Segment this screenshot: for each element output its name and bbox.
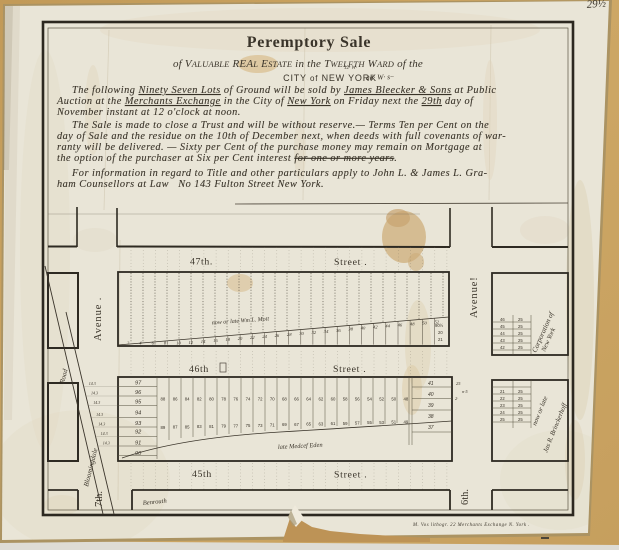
svg-text:65: 65 [306, 422, 311, 427]
svg-text:37: 37 [428, 425, 434, 431]
svg-text:46: 46 [500, 317, 505, 322]
svg-text:25: 25 [518, 324, 523, 329]
svg-text:66: 66 [294, 397, 299, 402]
svg-text:44: 44 [500, 331, 505, 336]
svg-text:For information in regard to T: For information in regard to Title and o… [71, 168, 488, 179]
svg-text:64: 64 [306, 397, 311, 402]
svg-text:88: 88 [161, 397, 166, 402]
svg-text:94: 94 [135, 411, 141, 417]
svg-text:44: 44 [385, 324, 390, 329]
svg-text:61: 61 [331, 421, 336, 426]
svg-text:43: 43 [500, 338, 505, 343]
svg-text:97: 97 [135, 381, 142, 387]
svg-text:2·: 2· [455, 396, 458, 401]
svg-text:24: 24 [500, 410, 505, 415]
svg-text:14.3: 14.3 [91, 391, 98, 396]
svg-text:92: 92 [135, 430, 142, 436]
svg-text:25: 25 [456, 381, 461, 386]
svg-text:M. Vos lithogr. 22 Merchants: M. Vos lithogr. 22 Merchants Exchange N.… [412, 523, 530, 528]
svg-text:96: 96 [135, 390, 142, 396]
svg-text:20: 20 [238, 336, 243, 341]
svg-text:25: 25 [500, 417, 505, 422]
svg-text:14.3: 14.3 [93, 400, 100, 405]
svg-text:28: 28 [287, 332, 292, 337]
svg-text:14: 14 [201, 339, 206, 344]
svg-text:41: 41 [428, 381, 434, 387]
svg-text:24: 24 [262, 334, 267, 339]
svg-text:25: 25 [518, 396, 523, 401]
svg-text:16: 16 [213, 338, 218, 343]
svg-text:23: 23 [500, 403, 505, 408]
svg-text:Avenue!: Avenue! [469, 276, 480, 318]
svg-text:14.3: 14.3 [101, 431, 108, 436]
svg-text:86: 86 [173, 397, 178, 402]
svg-text:90½: 90½ [435, 323, 444, 328]
svg-text:67: 67 [294, 422, 299, 427]
svg-text:10: 10 [176, 341, 181, 346]
svg-text:81: 81 [209, 424, 214, 429]
svg-text:25: 25 [518, 317, 523, 322]
svg-text:25: 25 [518, 331, 523, 336]
svg-text:79: 79 [221, 424, 226, 429]
svg-text:29½: 29½ [586, 0, 606, 11]
svg-text:14.3: 14.3 [89, 381, 96, 386]
svg-text:25: 25 [518, 338, 523, 343]
svg-text:57: 57 [355, 421, 360, 426]
svg-text:60: 60 [331, 397, 336, 402]
svg-text:36: 36 [336, 328, 341, 333]
svg-text:77: 77 [233, 423, 238, 428]
svg-text:of VALUABLE REAL ESTATE in the: of VALUABLE REAL ESTATE in the TWELFTH W… [173, 58, 423, 70]
svg-text:30: 30 [299, 331, 304, 336]
svg-text:12· W·: 12· W· [344, 66, 357, 71]
svg-text:68: 68 [282, 397, 287, 402]
svg-text:82: 82 [197, 397, 202, 402]
svg-text:Avenue .: Avenue . [93, 297, 104, 341]
svg-text:89: 89 [161, 425, 166, 430]
svg-text:22: 22 [250, 335, 255, 340]
svg-text:51: 51 [391, 420, 396, 425]
svg-text:80: 80 [209, 397, 214, 402]
svg-text:Peremptory Sale: Peremptory Sale [247, 34, 371, 51]
svg-text:55: 55 [367, 420, 372, 425]
svg-text:25: 25 [518, 389, 523, 394]
svg-text:32: 32 [312, 330, 317, 335]
svg-text:50: 50 [391, 397, 396, 402]
svg-text:ad· W· s··: ad· W· s·· [366, 72, 394, 82]
svg-text:November instant at 12 o'clock: November instant at 12 o'clock at noon. [56, 107, 241, 118]
svg-text:The following Ninety Seven Lot: The following Ninety Seven Lots of Groun… [72, 85, 497, 96]
svg-text:6th.: 6th. [460, 489, 471, 505]
svg-text:46: 46 [398, 323, 403, 328]
svg-text:n·5: n·5 [462, 389, 468, 394]
svg-text:74: 74 [246, 397, 251, 402]
svg-text:22: 22 [500, 396, 505, 401]
svg-text:69: 69 [282, 422, 287, 427]
svg-text:38: 38 [428, 414, 434, 420]
svg-text:The Sale is made to close a Tr: The Sale is made to close a Trust and wi… [72, 120, 489, 131]
svg-text:42: 42 [500, 345, 505, 350]
svg-text:7th.: 7th. [94, 491, 105, 507]
svg-text:14.3: 14.3 [103, 441, 110, 446]
svg-text:ranty will be delivered. — Six: ranty will be delivered. — Sixty per Cen… [57, 142, 483, 153]
svg-text:91: 91 [135, 441, 141, 447]
svg-text:25: 25 [518, 403, 523, 408]
svg-text:14.3: 14.3 [98, 422, 105, 427]
svg-text:38: 38 [348, 327, 353, 332]
svg-text:48: 48 [404, 397, 409, 402]
svg-text:34: 34 [324, 329, 329, 334]
svg-text:46th: 46th [189, 364, 209, 375]
svg-text:75: 75 [246, 423, 251, 428]
svg-text:Auction at the Merchants Excha: Auction at the Merchants Exchange in the… [56, 96, 475, 107]
svg-text:the option of the purchaser at: the option of the purchaser at Six per C… [57, 153, 397, 164]
svg-text:26: 26 [275, 333, 280, 338]
svg-text:85: 85 [185, 424, 190, 429]
svg-text:14.3: 14.3 [96, 412, 103, 417]
svg-text:40: 40 [428, 392, 434, 398]
svg-text:25: 25 [518, 417, 523, 422]
svg-text:95: 95 [135, 400, 142, 406]
svg-text:45: 45 [500, 324, 505, 329]
svg-text:84: 84 [185, 397, 190, 402]
svg-text:CITY of NEW YORK: CITY of NEW YORK [283, 73, 377, 83]
svg-text:72: 72 [258, 397, 263, 402]
svg-text:47th.: 47th. [190, 257, 213, 268]
svg-text:21: 21 [438, 337, 443, 342]
svg-text:42: 42 [373, 325, 378, 330]
svg-text:Street .: Street . [334, 257, 367, 268]
svg-text:20: 20 [438, 330, 443, 335]
svg-text:62: 62 [319, 397, 324, 402]
svg-text:21: 21 [500, 389, 505, 394]
svg-text:73: 73 [258, 423, 263, 428]
svg-text:59: 59 [343, 421, 348, 426]
svg-text:Street .: Street . [334, 470, 367, 481]
svg-text:25: 25 [518, 345, 523, 350]
svg-text:52: 52 [379, 397, 384, 402]
svg-text:25: 25 [518, 410, 523, 415]
svg-text:40: 40 [361, 326, 366, 331]
svg-text:ham Counsellors at Law No 14: ham Counsellors at Law No 143 Fulton Str… [57, 179, 324, 190]
svg-text:83: 83 [197, 424, 202, 429]
svg-text:76: 76 [233, 397, 238, 402]
svg-text:93: 93 [135, 421, 142, 427]
svg-text:12: 12 [189, 340, 194, 345]
svg-text:78: 78 [221, 397, 226, 402]
svg-text:87: 87 [173, 425, 178, 430]
svg-text:53: 53 [379, 420, 384, 425]
svg-text:56: 56 [355, 397, 360, 402]
svg-text:54: 54 [367, 397, 372, 402]
svg-text:45th: 45th [192, 469, 212, 480]
svg-text:50: 50 [422, 321, 427, 326]
svg-text:Street .: Street . [333, 364, 366, 375]
svg-text:18: 18 [225, 337, 230, 342]
svg-text:63: 63 [319, 421, 324, 426]
svg-text:39: 39 [428, 403, 434, 409]
svg-text:48: 48 [410, 322, 415, 327]
svg-text:day of Sale and the residue on: day of Sale and the residue on the 10th … [57, 131, 506, 142]
svg-text:58: 58 [343, 397, 348, 402]
svg-text:71: 71 [270, 423, 275, 428]
svg-text:70: 70 [270, 397, 275, 402]
